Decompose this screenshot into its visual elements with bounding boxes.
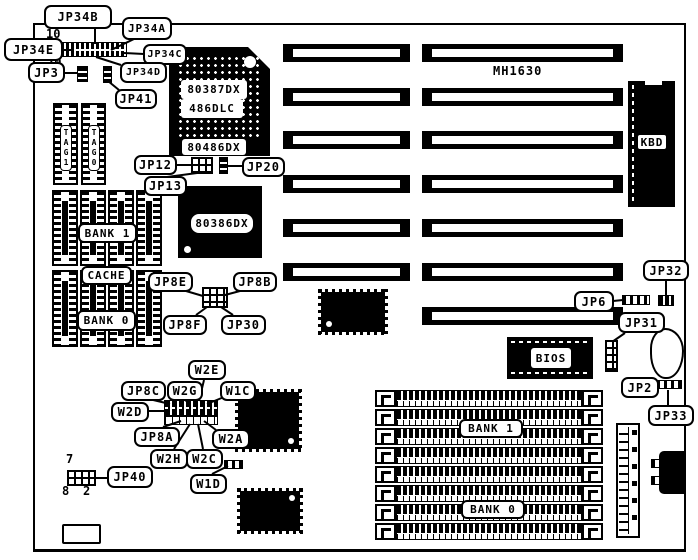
callout-jp34b: JP34B [44,5,112,29]
callout-w2a: W2A [212,429,250,449]
callout-jp31: JP31 [618,312,665,333]
callout-jp8c: JP8C [121,381,166,401]
callout-w1c: W1C [220,381,256,401]
callout-jp34a: JP34A [122,17,172,40]
callout-jp8e: JP8E [148,272,193,292]
callout-w2g: W2G [167,381,203,401]
callout-jp32: JP32 [643,260,689,281]
callout-jp33: JP33 [648,405,694,426]
callout-w2h: W2H [150,449,188,469]
callout-w2e: W2E [188,360,226,380]
callout-w2d: W2D [111,402,149,422]
callout-jp3: JP3 [28,62,65,83]
callout-jp2: JP2 [621,377,659,398]
callout-jp6: JP6 [574,291,614,312]
leader-lines [0,0,698,560]
callout-jp41: JP41 [115,89,157,109]
motherboard-diagram: MH1630 10 20 80387DX 486DLC 80486DX 8038… [0,0,698,560]
callout-jp30: JP30 [221,315,266,335]
callout-w1d: W1D [190,474,227,494]
callout-w2c: W2C [186,449,223,469]
callout-jp8a: JP8A [134,427,180,447]
callout-jp13: JP13 [144,176,187,196]
callout-jp8b: JP8B [233,272,277,292]
callout-jp34e: JP34E [4,38,63,61]
callout-jp34d: JP34D [120,62,167,83]
callout-jp12: JP12 [134,155,177,175]
callout-jp20: JP20 [242,157,285,177]
callout-jp40: JP40 [107,466,153,488]
callout-jp8f: JP8F [163,315,207,335]
